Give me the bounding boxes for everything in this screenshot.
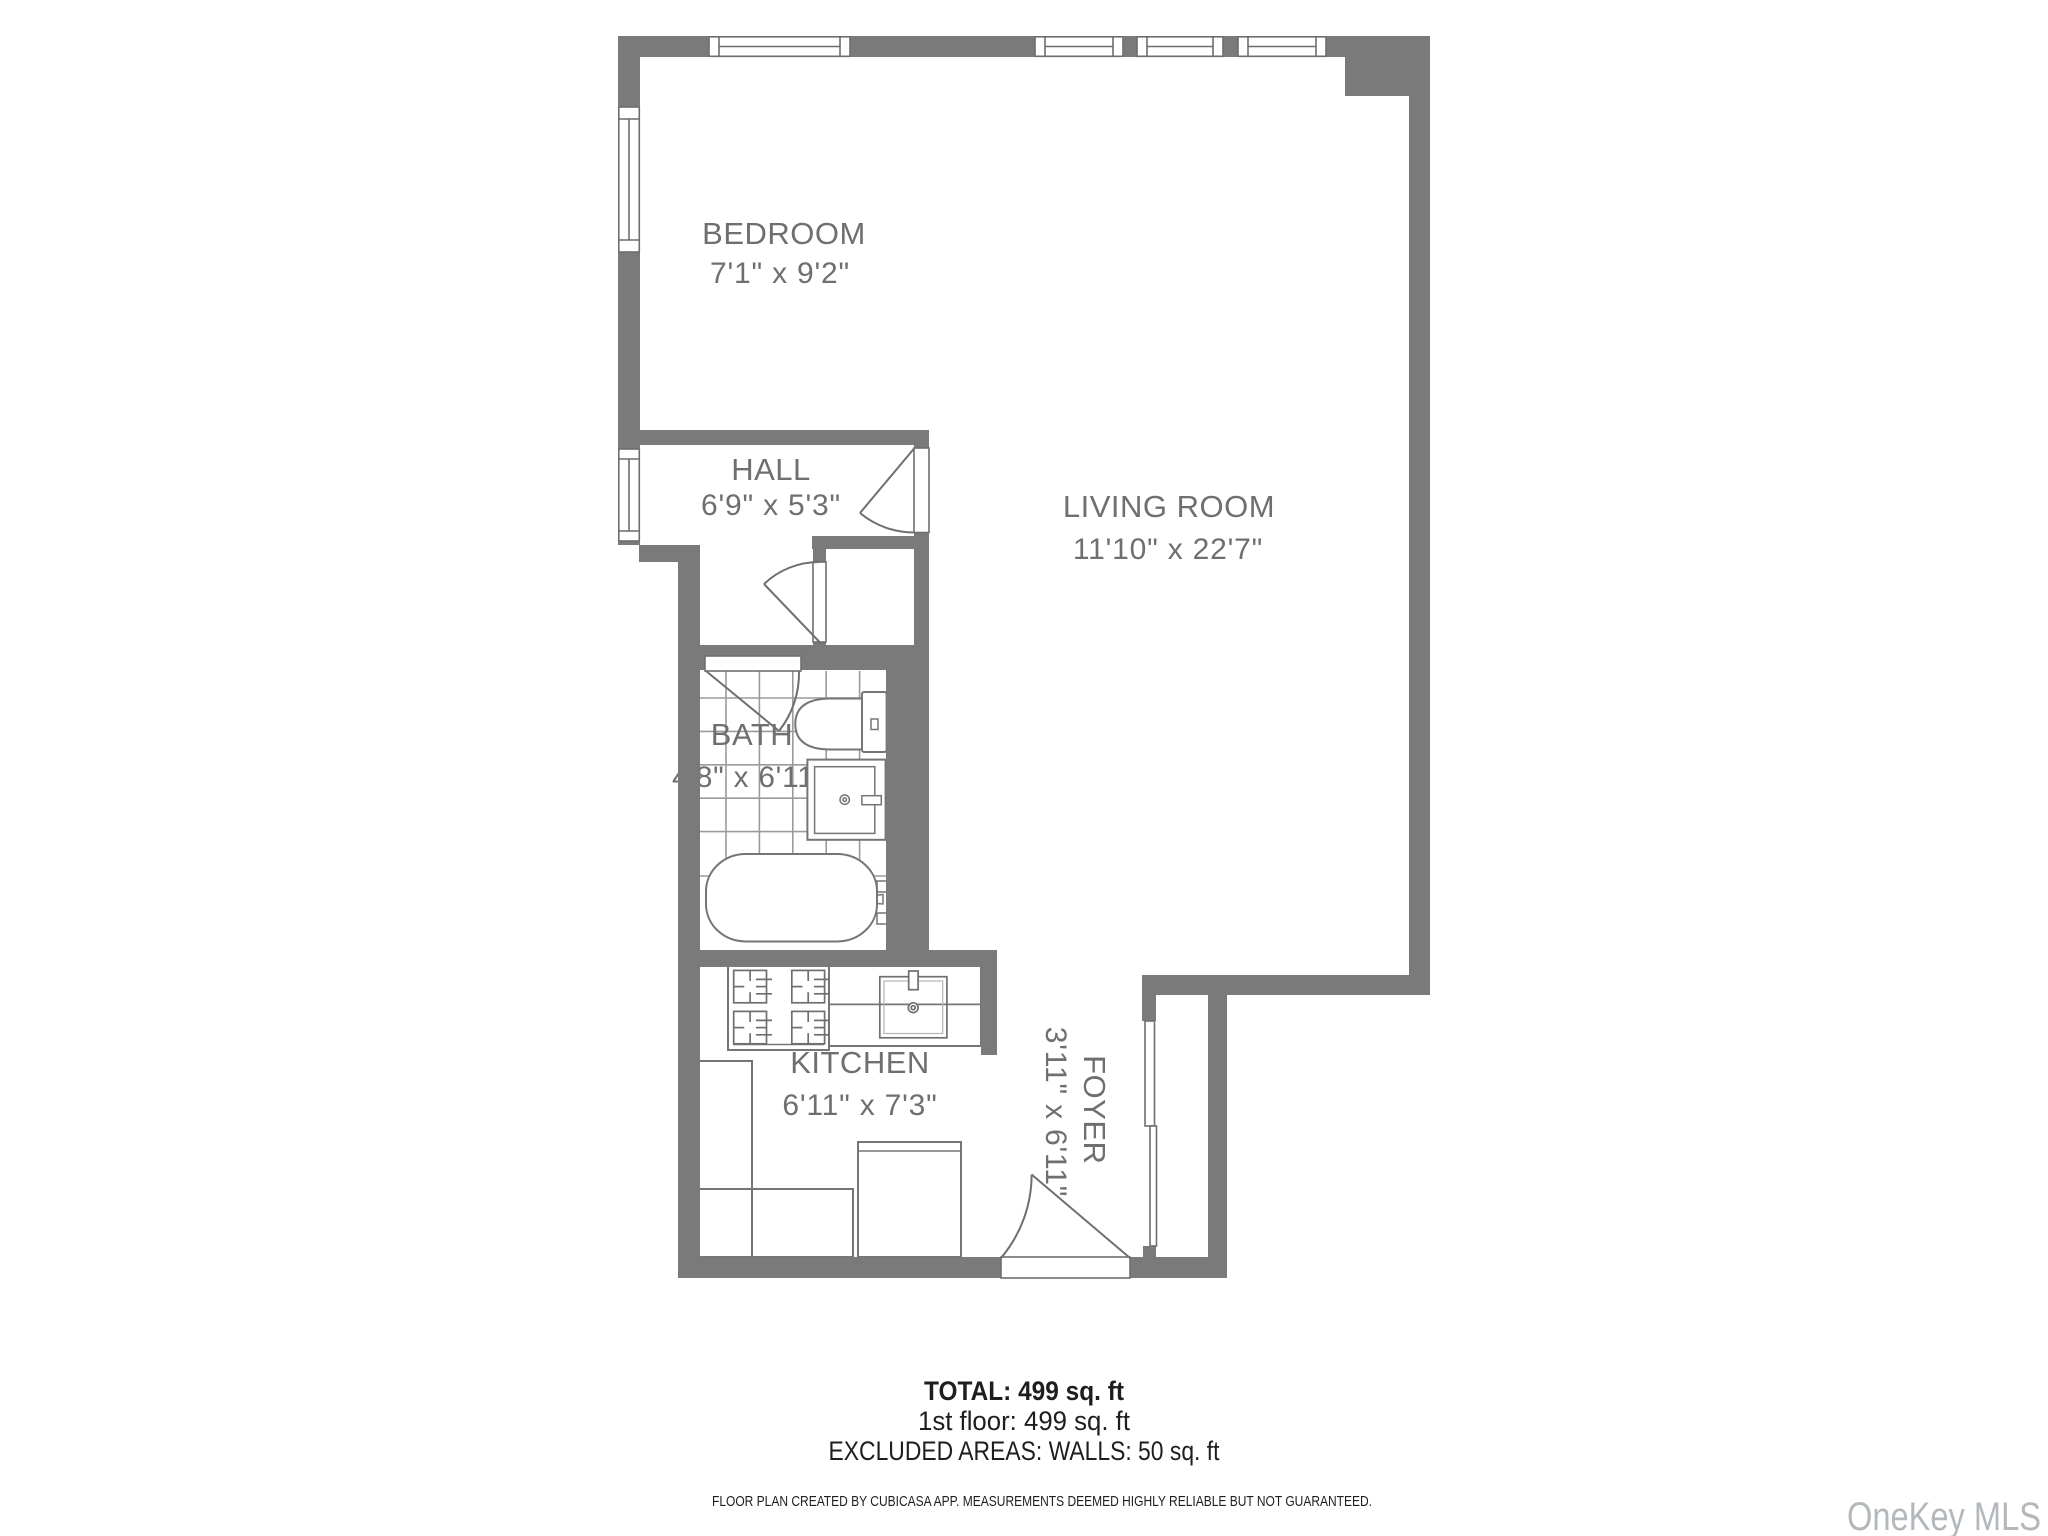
svg-text:11'10" x 22'7": 11'10" x 22'7": [1073, 533, 1263, 566]
svg-text:7'1" x 9'2": 7'1" x 9'2": [710, 257, 850, 290]
svg-text:TOTAL: 499 sq. ft: TOTAL: 499 sq. ft: [924, 1376, 1124, 1406]
svg-text:6'9" x 5'3": 6'9" x 5'3": [701, 489, 841, 522]
svg-text:OneKey MLS: OneKey MLS: [1847, 1495, 2041, 1536]
svg-text:EXCLUDED AREAS: WALLS: 50 sq.: EXCLUDED AREAS: WALLS: 50 sq. ft: [829, 1436, 1220, 1466]
svg-text:BEDROOM: BEDROOM: [702, 216, 866, 251]
svg-text:6'11" x 7'3": 6'11" x 7'3": [782, 1089, 937, 1122]
svg-text:HALL: HALL: [731, 452, 811, 487]
svg-text:LIVING ROOM: LIVING ROOM: [1063, 489, 1275, 524]
svg-text:1st floor: 499 sq. ft: 1st floor: 499 sq. ft: [918, 1406, 1130, 1436]
svg-text:FLOOR PLAN CREATED BY CUBICASA: FLOOR PLAN CREATED BY CUBICASA APP. MEAS…: [712, 1493, 1372, 1510]
svg-text:BATH: BATH: [711, 717, 793, 752]
svg-text:KITCHEN: KITCHEN: [790, 1045, 930, 1080]
